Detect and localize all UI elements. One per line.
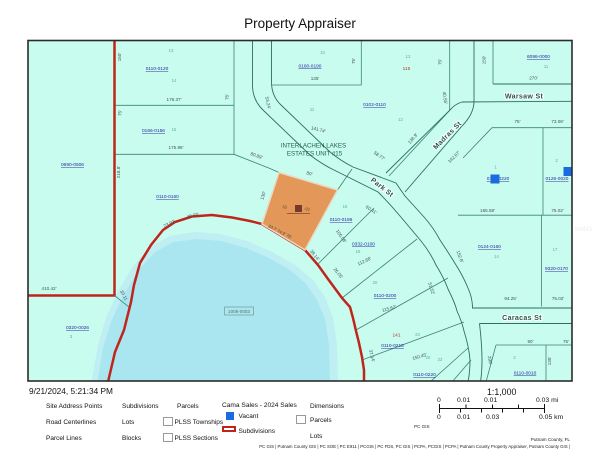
svg-text:Warsaw St: Warsaw St: [505, 93, 544, 101]
svg-text:135': 135': [547, 357, 552, 366]
svg-text:75': 75': [351, 58, 356, 64]
svg-text:0110-0120: 0110-0120: [146, 66, 169, 72]
svg-text:22: 22: [438, 357, 443, 362]
svg-text:0690-0506: 0690-0506: [61, 162, 84, 168]
svg-text:15: 15: [172, 127, 177, 132]
svg-text:20: 20: [373, 280, 378, 285]
svg-text:0110-0186: 0110-0186: [330, 217, 353, 223]
svg-text:12: 12: [398, 117, 403, 122]
svg-text:17: 17: [553, 247, 558, 252]
svg-text:75': 75': [225, 94, 230, 100]
svg-text:410.42': 410.42': [42, 286, 57, 291]
svg-text:73.08': 73.08': [551, 119, 563, 124]
svg-text:75': 75': [118, 110, 123, 116]
svg-text:0110-0215: 0110-0215: [381, 343, 404, 349]
svg-text:INTERLACHEN LAKES: INTERLACHEN LAKES: [281, 143, 346, 150]
svg-text:ESTATES UNIT #15: ESTATES UNIT #15: [287, 150, 343, 157]
svg-text:135': 135': [311, 76, 320, 81]
svg-text:218.8': 218.8': [116, 166, 121, 178]
svg-text:19: 19: [356, 249, 361, 254]
svg-text:75': 75': [563, 339, 569, 344]
svg-text:20: 20: [426, 355, 431, 360]
svg-text:75.02': 75.02': [552, 296, 564, 301]
svg-text:0.01: 0.01: [484, 397, 497, 404]
svg-text:270': 270': [529, 76, 538, 81]
svg-text:0.03: 0.03: [486, 414, 499, 421]
svg-text:75.02': 75.02': [551, 208, 563, 213]
svg-text:141: 141: [392, 333, 400, 339]
svg-text:10: 10: [320, 50, 325, 55]
svg-text:75': 75': [515, 119, 521, 124]
svg-text:0110-0200: 0110-0200: [374, 293, 397, 299]
svg-text:150': 150': [117, 53, 122, 62]
svg-text:14: 14: [172, 78, 177, 83]
svg-text:9320-0170: 9320-0170: [545, 266, 568, 272]
svg-text:0126-0020: 0126-0020: [546, 176, 569, 182]
svg-text:175.98': 175.98': [169, 145, 184, 150]
svg-text:0110-0160: 0110-0160: [156, 194, 179, 200]
svg-text:0110-0010: 0110-0010: [514, 371, 537, 377]
svg-text:94.25': 94.25': [504, 296, 516, 301]
svg-text:14: 14: [494, 254, 499, 259]
svg-text:0166-0156: 0166-0156: [142, 128, 165, 134]
svg-text:176.37': 176.37': [167, 97, 182, 102]
svg-text:11: 11: [544, 64, 549, 69]
svg-text:115: 115: [403, 66, 411, 72]
svg-text:Caracas St: Caracas St: [502, 314, 542, 322]
svg-text:0124-0160: 0124-0160: [478, 244, 501, 250]
svg-text:0320-0026: 0320-0026: [66, 325, 89, 331]
svg-text:0102-0110: 0102-0110: [363, 102, 386, 108]
svg-text:150': 150': [482, 56, 487, 65]
svg-text:75': 75': [438, 59, 443, 65]
svg-text:0160-0190: 0160-0190: [299, 64, 322, 70]
svg-text:90': 90': [528, 339, 534, 344]
svg-text:0.05 km: 0.05 km: [539, 414, 564, 421]
svg-text:0110-0220: 0110-0220: [413, 372, 436, 378]
svg-text:0.03 mi: 0.03 mi: [536, 397, 559, 404]
svg-text:13: 13: [406, 54, 411, 59]
svg-text:0.01: 0.01: [457, 397, 470, 404]
svg-text:1008-0003: 1008-0003: [228, 309, 250, 314]
svg-text:0: 0: [437, 397, 441, 404]
svg-text:6098-0000: 6098-0000: [527, 54, 550, 60]
svg-text:165.58': 165.58': [480, 208, 495, 213]
svg-text:13: 13: [169, 48, 174, 53]
svg-text:0: 0: [437, 414, 441, 421]
svg-text:11: 11: [310, 107, 315, 112]
svg-text:16: 16: [343, 204, 348, 209]
svg-text:23: 23: [415, 332, 420, 337]
svg-text:0.01: 0.01: [457, 414, 470, 421]
svg-text:0332-0100: 0332-0100: [352, 242, 375, 248]
